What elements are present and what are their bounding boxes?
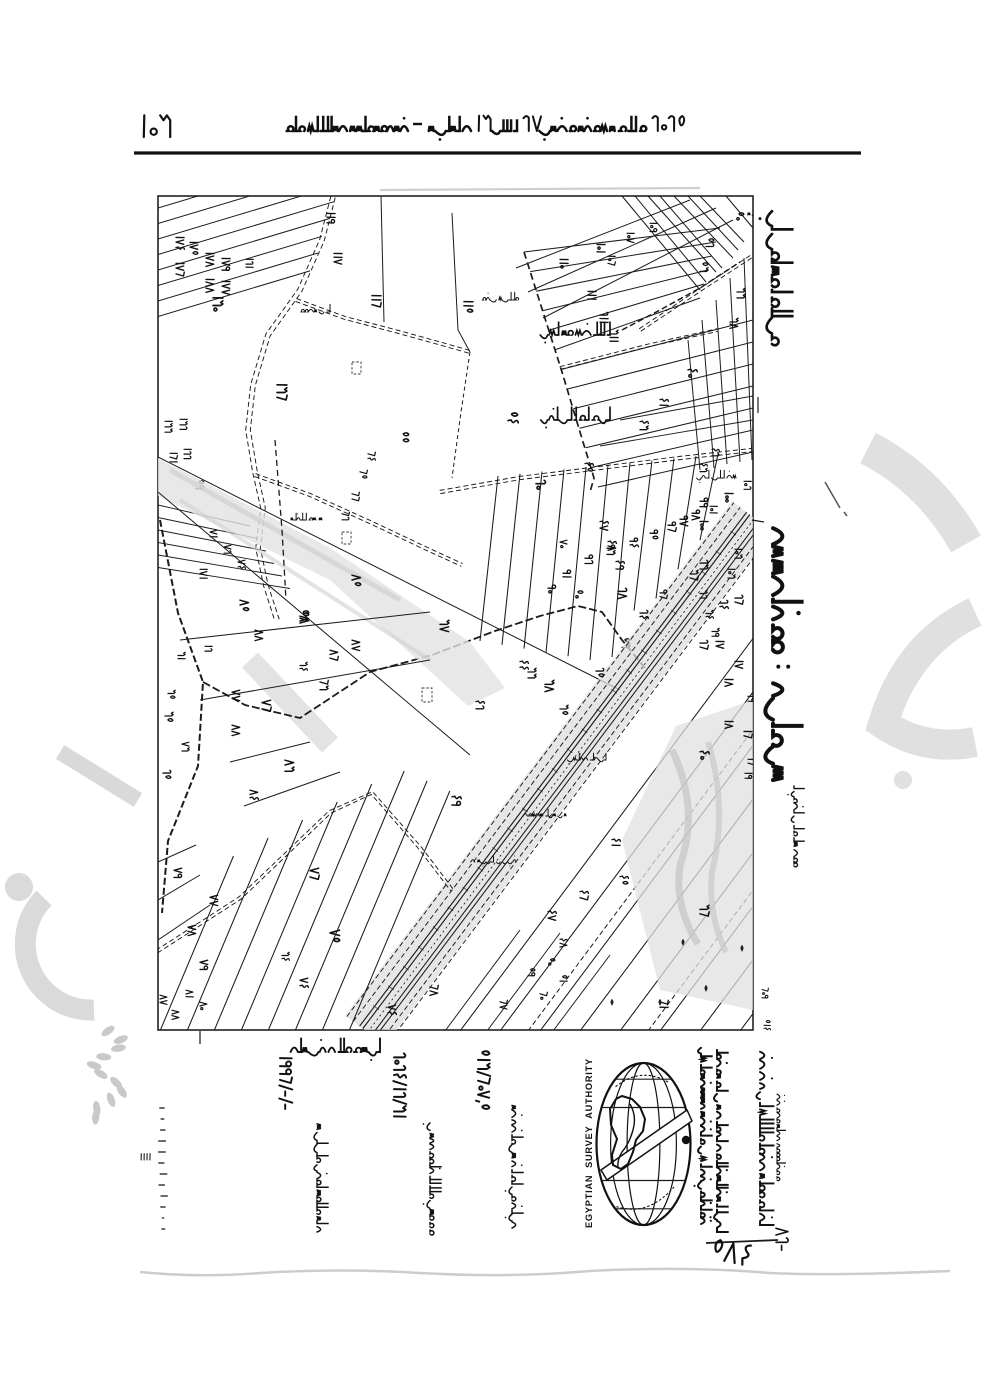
svg-text:EGYPTIAN SURVEY AUTHORITY: EGYPTIAN SURVEY AUTHORITY [584,1058,594,1228]
